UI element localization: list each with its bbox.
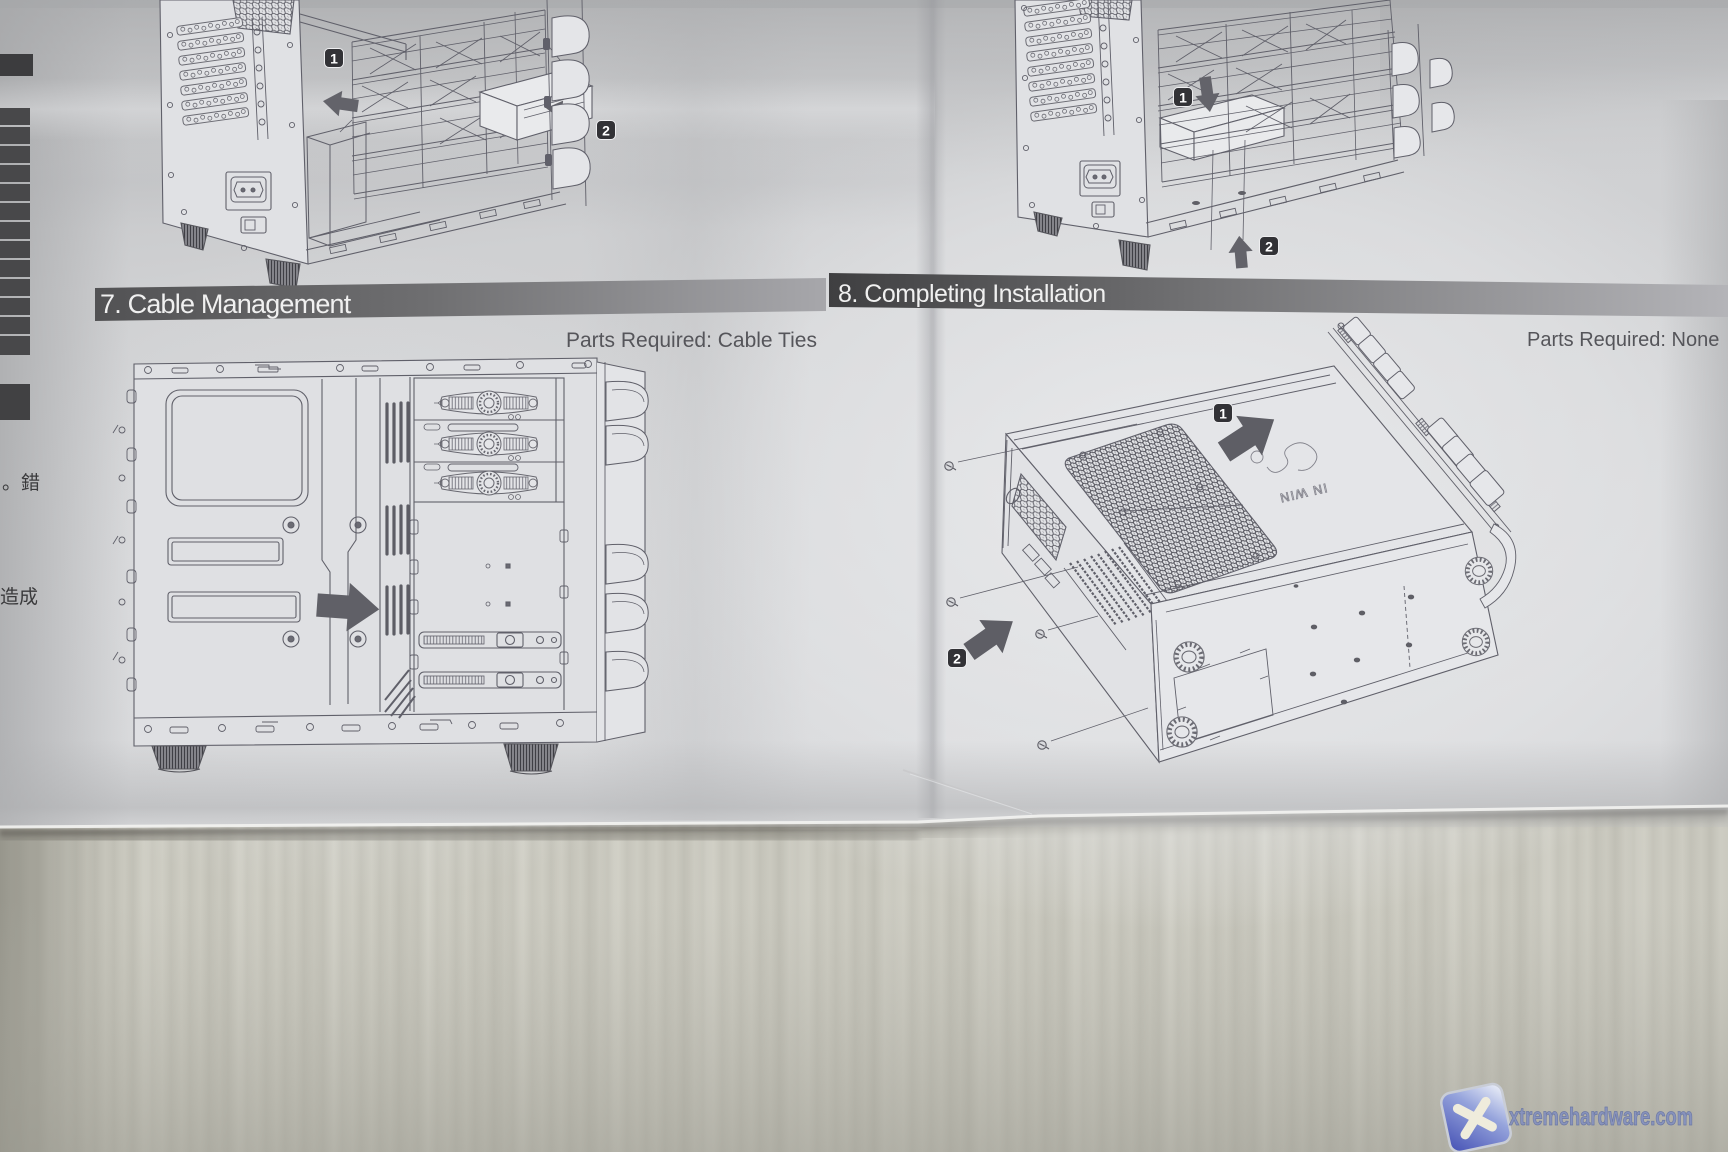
svg-text:7. Cable Management: 7. Cable Management bbox=[100, 289, 352, 319]
svg-text:。錯: 。錯 bbox=[2, 472, 40, 494]
svg-text:Parts Required: Cable Ties: Parts Required: Cable Ties bbox=[566, 329, 817, 352]
svg-text:xtremehardware.com: xtremehardware.com bbox=[1509, 1103, 1693, 1131]
svg-text:8. Completing Installation: 8. Completing Installation bbox=[838, 280, 1106, 308]
svg-text:Parts Required: None: Parts Required: None bbox=[1527, 329, 1719, 351]
svg-text:造成: 造成 bbox=[0, 586, 38, 608]
